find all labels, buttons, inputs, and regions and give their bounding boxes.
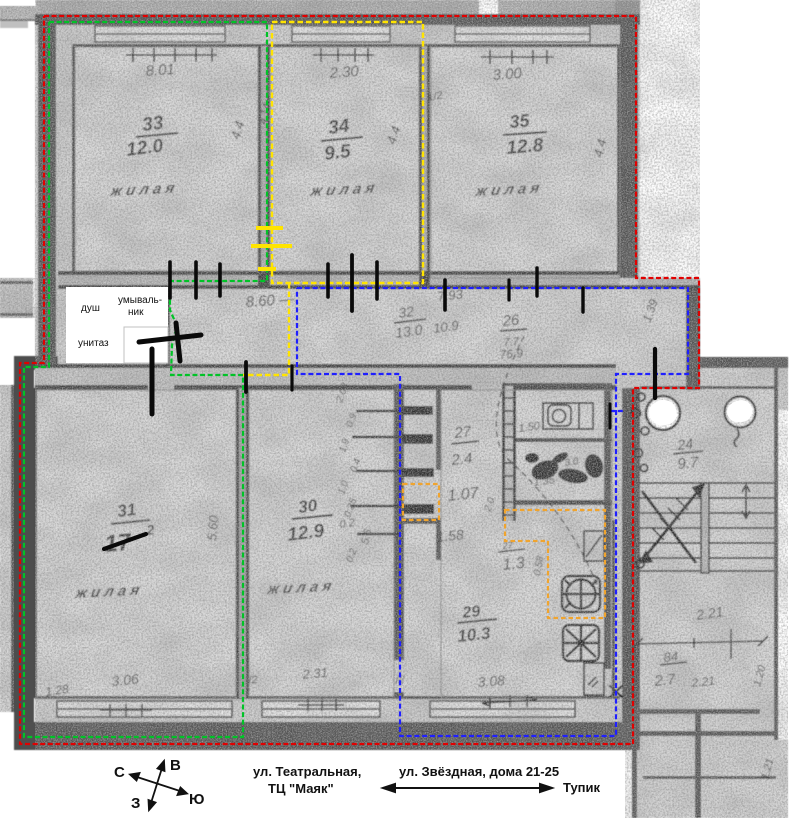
svg-text:З: З <box>131 795 140 812</box>
svg-text:ул. Звёздная, дома 21-25: ул. Звёздная, дома 21-25 <box>399 764 559 779</box>
svg-text:унитаз: унитаз <box>78 338 109 349</box>
svg-text:С: С <box>114 764 125 781</box>
svg-text:умываль-: умываль- <box>118 295 162 306</box>
svg-text:Тупик: Тупик <box>563 780 601 795</box>
svg-text:ник: ник <box>128 307 144 318</box>
svg-text:В: В <box>170 757 181 774</box>
svg-text:душ: душ <box>81 303 100 314</box>
svg-text:ТЦ "Маяк": ТЦ "Маяк" <box>268 781 334 796</box>
svg-text:ул. Театральная,: ул. Театральная, <box>253 764 361 779</box>
svg-text:Ю: Ю <box>189 791 204 808</box>
